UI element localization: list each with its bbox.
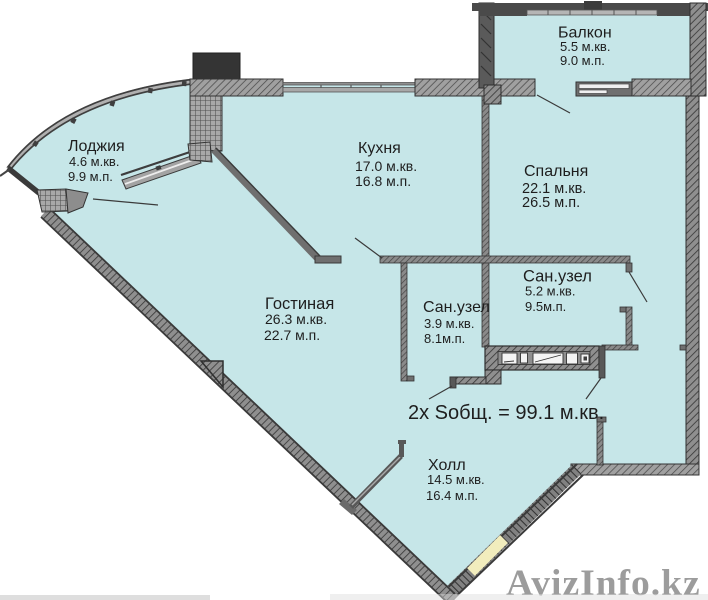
svg-text:22.7 м.п.: 22.7 м.п.: [264, 327, 320, 343]
svg-text:5.2 м.кв.: 5.2 м.кв.: [525, 284, 575, 299]
svg-text:3.9 м.кв.: 3.9 м.кв.: [424, 316, 474, 331]
svg-text:16.8 м.п.: 16.8 м.п.: [355, 173, 411, 189]
svg-text:5.5 м.кв.: 5.5 м.кв.: [560, 39, 610, 54]
svg-text:Лоджия: Лоджия: [68, 138, 125, 155]
svg-text:17.0 м.кв.: 17.0 м.кв.: [355, 158, 417, 174]
svg-text:26.3 м.кв.: 26.3 м.кв.: [265, 311, 327, 327]
svg-text:9.5м.п.: 9.5м.п.: [525, 299, 566, 314]
svg-text:14.5 м.кв.: 14.5 м.кв.: [427, 472, 485, 487]
svg-text:9.9 м.п.: 9.9 м.п.: [68, 169, 113, 184]
svg-text:4.6 м.кв.: 4.6 м.кв.: [69, 154, 119, 169]
svg-text:Спальня: Спальня: [524, 163, 588, 180]
svg-text:2x Sобщ. = 99.1 м.кв.: 2x Sобщ. = 99.1 м.кв.: [408, 402, 604, 424]
svg-text:26.5 м.п.: 26.5 м.п.: [522, 195, 580, 211]
svg-text:Кухня: Кухня: [358, 140, 401, 157]
svg-text:16.4 м.п.: 16.4 м.п.: [426, 488, 478, 503]
svg-text:Сан.узел: Сан.узел: [423, 299, 490, 316]
svg-text:8.1м.п.: 8.1м.п.: [424, 331, 465, 346]
svg-text:9.0 м.п.: 9.0 м.п.: [560, 53, 605, 68]
